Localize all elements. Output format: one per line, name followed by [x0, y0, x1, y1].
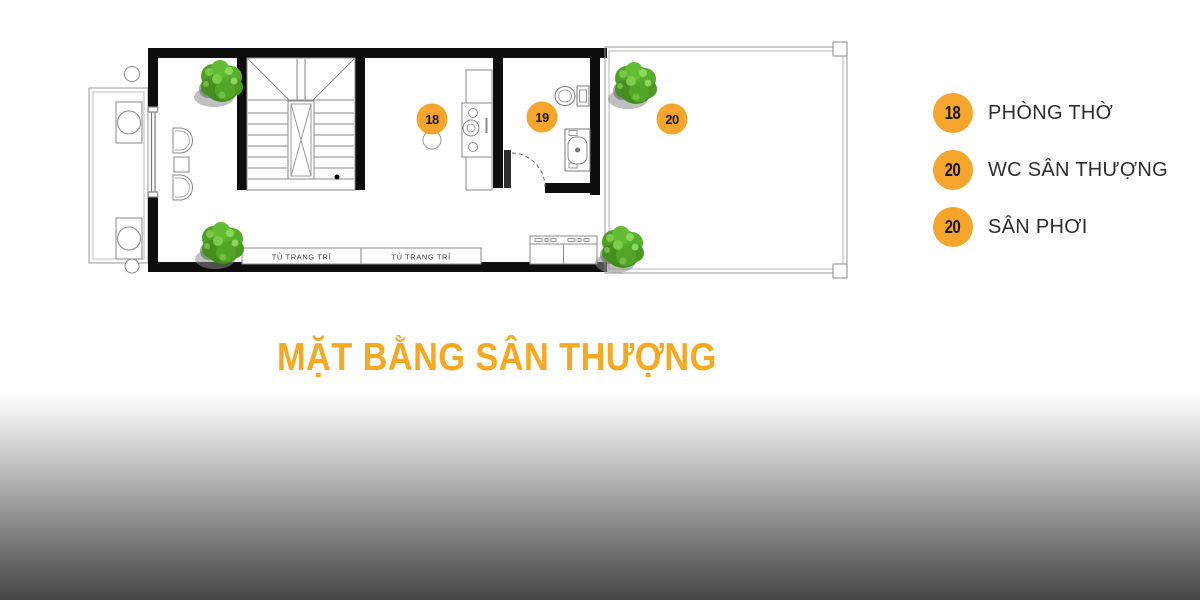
decorative-cabinets: TỦ TRANG TRÍ TỦ TRANG TRÍ — [242, 248, 481, 264]
plant-icon — [194, 60, 243, 107]
plant-icon — [608, 62, 657, 109]
plan-marker-18: 18 — [417, 104, 448, 135]
footer: TKN 365 THIETKENHA365.VN HOTLINE:0906840… — [0, 392, 1200, 600]
sink-icon — [565, 129, 590, 171]
page-title: MẶT BẰNG SÂN THƯỢNG — [97, 336, 897, 380]
legend-badge: 20 — [933, 150, 973, 190]
plant-icon — [195, 222, 244, 269]
legend-badge: 20 — [933, 207, 973, 247]
legend-item-phong-tho: 18 PHÒNG THỜ — [933, 93, 1168, 133]
legend-label: WC SÂN THƯỢNG — [988, 159, 1168, 182]
page: TỦ TRANG TRÍ TỦ TRANG TRÍ — [0, 0, 1200, 600]
lounge-chairs — [173, 128, 193, 200]
wc-door — [504, 150, 545, 188]
legend-item-san-phoi: 20 SÂN PHƠI — [933, 207, 1168, 247]
legend-item-wc-san-thuong: 20 WC SÂN THƯỢNG — [933, 150, 1168, 190]
staircase — [247, 58, 355, 190]
balcony-door — [149, 107, 158, 197]
laundry-counter — [530, 236, 597, 264]
legend-label: PHÒNG THỜ — [988, 102, 1113, 125]
legend-badge: 18 — [933, 93, 973, 133]
plan-marker-19: 19 — [527, 102, 558, 133]
svg-text:18: 18 — [425, 112, 439, 127]
floor-plan: TỦ TRANG TRÍ TỦ TRANG TRÍ — [85, 38, 850, 288]
altar-cabinet — [462, 70, 492, 190]
svg-text:20: 20 — [665, 112, 679, 127]
plant-icon — [595, 226, 644, 273]
floor-plan-drawing: TỦ TRANG TRÍ TỦ TRANG TRÍ — [85, 38, 850, 288]
toilet-icon — [555, 86, 589, 106]
plan-marker-20: 20 — [657, 104, 688, 135]
balcony — [89, 67, 148, 274]
svg-text:19: 19 — [535, 110, 549, 125]
legend: 18 PHÒNG THỜ 20 WC SÂN THƯỢNG 20 SÂN PHƠ… — [933, 93, 1168, 264]
legend-label: SÂN PHƠI — [988, 216, 1088, 239]
cabinet-label: TỦ TRANG TRÍ — [391, 253, 451, 262]
cabinet-label: TỦ TRANG TRÍ — [272, 253, 332, 262]
